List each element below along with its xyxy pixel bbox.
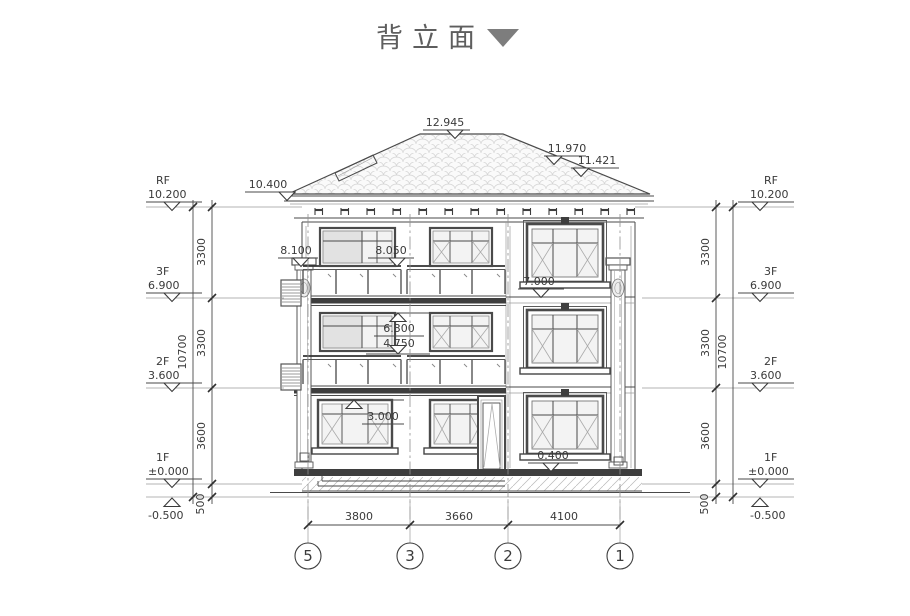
balcony-slab-2f [294, 386, 635, 396]
dim-right-seg-2: 3300 [699, 329, 712, 357]
window-2f-middle [430, 313, 492, 351]
window-3f-middle [430, 228, 492, 266]
dim-left-seg-4: 500 [194, 494, 207, 515]
dim-left-seg-1: 3300 [195, 238, 208, 266]
level-name: RF [156, 174, 170, 187]
level-ground-right: -0.500 [750, 498, 785, 522]
axis-bubble-5: 5 [295, 543, 321, 569]
level-name: 2F [156, 355, 169, 368]
section-collapse-triangle-icon[interactable] [487, 29, 519, 47]
dim-right-seg-3: 3600 [699, 422, 712, 450]
dim-left-seg-2: 3300 [195, 329, 208, 357]
dim-bottom-seg-2: 3660 [445, 510, 473, 523]
level-value: 3.600 [148, 369, 180, 382]
level-rf-left: RF 10.200 [146, 174, 202, 211]
level-name: 3F [764, 265, 777, 278]
railing-2f-right [407, 356, 505, 384]
level-value: 3.600 [750, 369, 782, 382]
axis-bubble-1: 1 [607, 543, 633, 569]
roof [284, 134, 654, 222]
axis-number: 5 [303, 547, 313, 565]
railing-2f-left [303, 356, 401, 384]
level-value: -0.500 [750, 509, 785, 522]
spot-eave: 10.400 [249, 178, 288, 191]
entry-door [478, 396, 505, 470]
dim-left-seg-3: 3600 [195, 422, 208, 450]
eave-dentils [300, 208, 640, 215]
level-1f-left: 1F ±0.000 [146, 451, 202, 488]
level-value: 6.900 [148, 279, 180, 292]
elevation-drawing: 背立面 12.945 11.970 11.421 10.400 [0, 0, 910, 616]
spot-window3-sill: 7.000 [523, 275, 555, 288]
level-value: -0.500 [148, 509, 183, 522]
window-2f-right [520, 303, 610, 374]
left-dimension-column: 3300 3300 3600 500 10700 RF 10.200 3F 6.… [146, 174, 302, 522]
pilaster-right [606, 258, 630, 468]
level-3f-left: 3F 6.900 [146, 265, 202, 302]
level-rf-right: RF 10.200 [738, 174, 794, 211]
railing-3f-right [407, 266, 505, 294]
level-3f-right: 3F 6.900 [738, 265, 794, 302]
level-value: ±0.000 [748, 465, 789, 478]
facade [146, 217, 794, 497]
spot-slope-lower: 11.421 [578, 154, 617, 167]
level-name: 1F [156, 451, 169, 464]
level-value: 10.200 [750, 188, 789, 201]
level-name: 3F [156, 265, 169, 278]
axis-bubble-3: 3 [397, 543, 423, 569]
axis-number: 1 [615, 547, 625, 565]
level-name: 1F [764, 451, 777, 464]
spot-balcony3-end: 8.100 [280, 244, 312, 257]
level-name: RF [764, 174, 778, 187]
dim-right-total: 10700 [716, 335, 729, 370]
dim-bottom-seg-1: 3800 [345, 510, 373, 523]
axis-number: 2 [503, 547, 513, 565]
spot-balcony3-rail: 8.050 [375, 244, 407, 257]
spot-window1-head: 3.000 [367, 410, 399, 423]
level-name: 2F [764, 355, 777, 368]
louver-vent-lower [281, 364, 301, 390]
axis-number: 3 [405, 547, 415, 565]
page-title: 背立面 [376, 23, 484, 54]
level-2f-left: 2F 3.600 [146, 355, 202, 392]
dim-left-total: 10700 [176, 335, 189, 370]
elevation-sheet: 背立面 12.945 11.970 11.421 10.400 [0, 0, 910, 616]
railing-3f-left [303, 266, 401, 294]
level-value: 6.900 [750, 279, 782, 292]
dim-right-seg-4: 500 [698, 494, 711, 515]
level-2f-right: 2F 3.600 [738, 355, 794, 392]
level-ground-left: -0.500 [148, 498, 183, 522]
sheet-title: 背立面 [376, 23, 519, 54]
level-value: ±0.000 [148, 465, 189, 478]
base-band [294, 469, 642, 476]
balcony-slab-3f [294, 296, 635, 306]
level-value: 10.200 [148, 188, 187, 201]
spot-window1-sill: 0.400 [537, 449, 569, 462]
louver-vent-upper [281, 280, 301, 306]
right-dimension-column: 3300 3300 3600 500 10700 RF 10.200 3F 6.… [635, 174, 794, 522]
level-1f-right: 1F ±0.000 [738, 451, 794, 488]
dim-bottom-seg-3: 4100 [550, 510, 578, 523]
plinth-hatch [302, 477, 642, 491]
dim-right-seg-1: 3300 [699, 238, 712, 266]
spot-ridge: 12.945 [426, 116, 465, 129]
axis-bubble-2: 2 [495, 543, 521, 569]
